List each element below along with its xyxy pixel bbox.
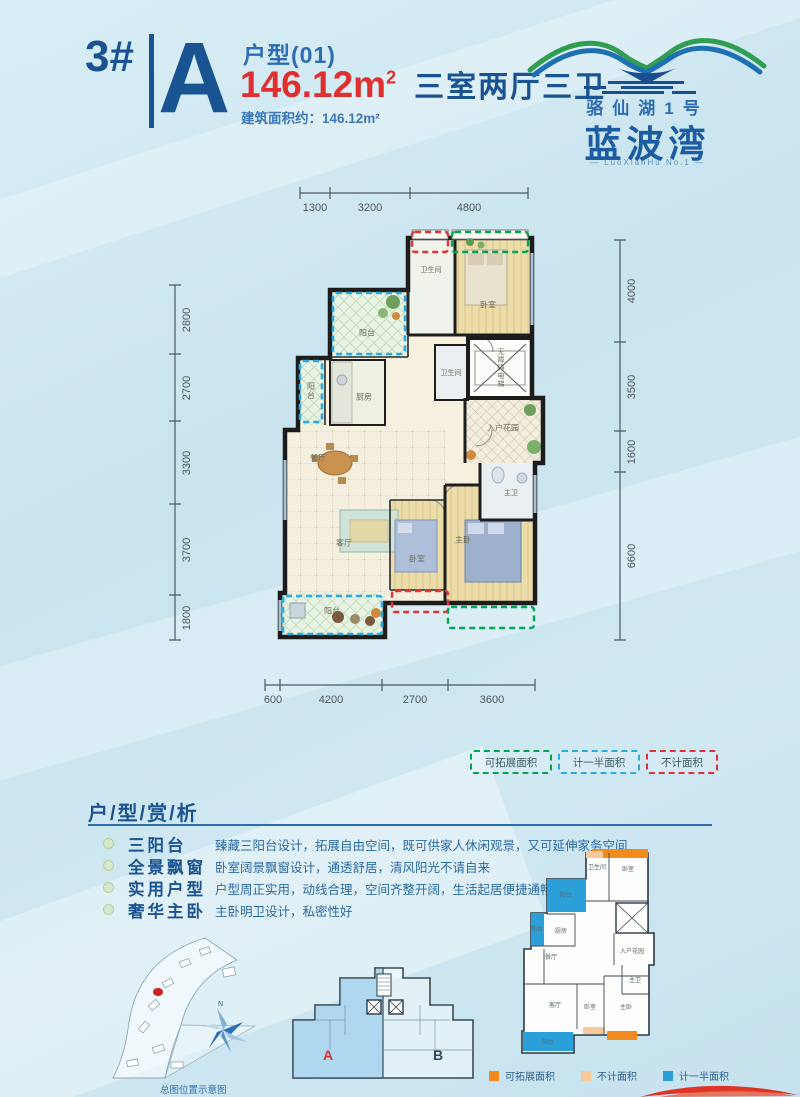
area-note: 建筑面积约：146.12m² [241,107,380,127]
legend-excluded-label: 不计面积 [661,755,703,770]
analysis-term: 三阳台 [128,832,187,856]
dim-label: 1600 [626,440,638,464]
logo-title-en: — LuoXianHu No.1 — [525,158,770,167]
dim-label: 4000 [626,279,638,303]
header-divider [149,34,154,128]
bullet-icon [103,904,114,915]
site-highlight-dot [153,988,163,996]
dim-label: 4200 [319,694,343,706]
svg-text:阳台: 阳台 [560,891,572,899]
poster-page: 3# A 户型(01) 146.12m2三室两厅三卫 建筑面积约：146.12m… [0,0,800,1097]
dim-label: 600 [264,694,282,706]
legend-expandable: 可拓展面积 [470,750,552,774]
dim-label: 2700 [181,376,193,400]
unit-letter: A [158,28,230,128]
dim-label: 1300 [303,202,327,214]
legend-half-label: 计一半面积 [573,755,626,770]
analysis-title: 户/型/赏/析 [88,797,199,826]
dim-label: 3200 [358,202,382,214]
svg-text:阳台: 阳台 [531,925,543,933]
dim-label: 6600 [626,544,638,568]
keyplan-unit-a-label: A [323,1047,333,1063]
svg-text:阳台: 阳台 [542,1038,554,1046]
svg-text:卧室: 卧室 [622,865,634,873]
logo-bird-icon [522,24,772,96]
bullet-icon [103,882,114,893]
dim-label: 2700 [403,694,427,706]
svg-text:客厅: 客厅 [549,1001,561,1009]
svg-text:主卧: 主卧 [620,1003,632,1011]
dim-label: 3600 [480,694,504,706]
floorplan-drawing: 1300 3200 4800 2800 2700 3300 3700 1800 … [140,175,650,740]
dim-label: 3300 [181,451,193,475]
bullet-icon [103,860,114,871]
compass-n-label: N [218,1001,223,1008]
siteplan-caption: 总图位置示意图 [160,1082,227,1096]
building-number: 3# [85,32,134,82]
legend-excluded: 不计面积 [646,750,718,774]
legend-expandable-label: 可拓展面积 [485,755,538,770]
analysis-desc: 卧室阔景飘窗设计，通透舒居，清风阳光不请自来 [215,857,490,876]
siteplan-sketch: N [105,930,290,1080]
svg-text:卧室: 卧室 [584,1003,596,1011]
keyplan-drawing: A B [285,960,480,1090]
dim-label: 1800 [181,606,193,630]
dim-label: 3500 [626,375,638,399]
dim-label: 3700 [181,538,193,562]
analysis-term: 实用户型 [128,876,206,900]
svg-text:主卫: 主卫 [629,976,641,984]
keyplan-unit-b-label: B [433,1047,443,1063]
area-value: 146.12m2 [240,64,396,105]
svg-text:厨房: 厨房 [555,927,567,935]
dim-label: 4800 [457,202,481,214]
svg-text:卫生间: 卫生间 [588,863,606,871]
mini-legend-expandable: 可拓展面积 [489,1068,555,1083]
orange-swatch-icon [489,1071,499,1081]
tan-swatch-icon [581,1071,591,1081]
dim-label: 2800 [181,308,193,332]
svg-text:入户花园: 入户花园 [620,947,644,955]
bullet-icon [103,838,114,849]
mini-legend-excluded: 不计面积 [581,1068,637,1083]
svg-text:餐厅: 餐厅 [545,953,557,961]
analysis-divider [88,824,712,826]
mini-excluded-zone [583,1027,605,1034]
analysis-term: 奢华主卧 [128,898,206,922]
red-swoosh-icon [640,1080,800,1097]
legend-half: 计一半面积 [558,750,640,774]
blue-swatch-icon [663,1071,673,1081]
analysis-term: 全景飘窗 [128,854,206,878]
analysis-desc: 主卧明卫设计，私密性好 [215,901,353,920]
miniplan-drawing: 卫生间 卧室 阳台 阳台 厨房 餐厅 入户花园 客厅 卧室 主卧 主卫 阳台 [495,845,670,1060]
